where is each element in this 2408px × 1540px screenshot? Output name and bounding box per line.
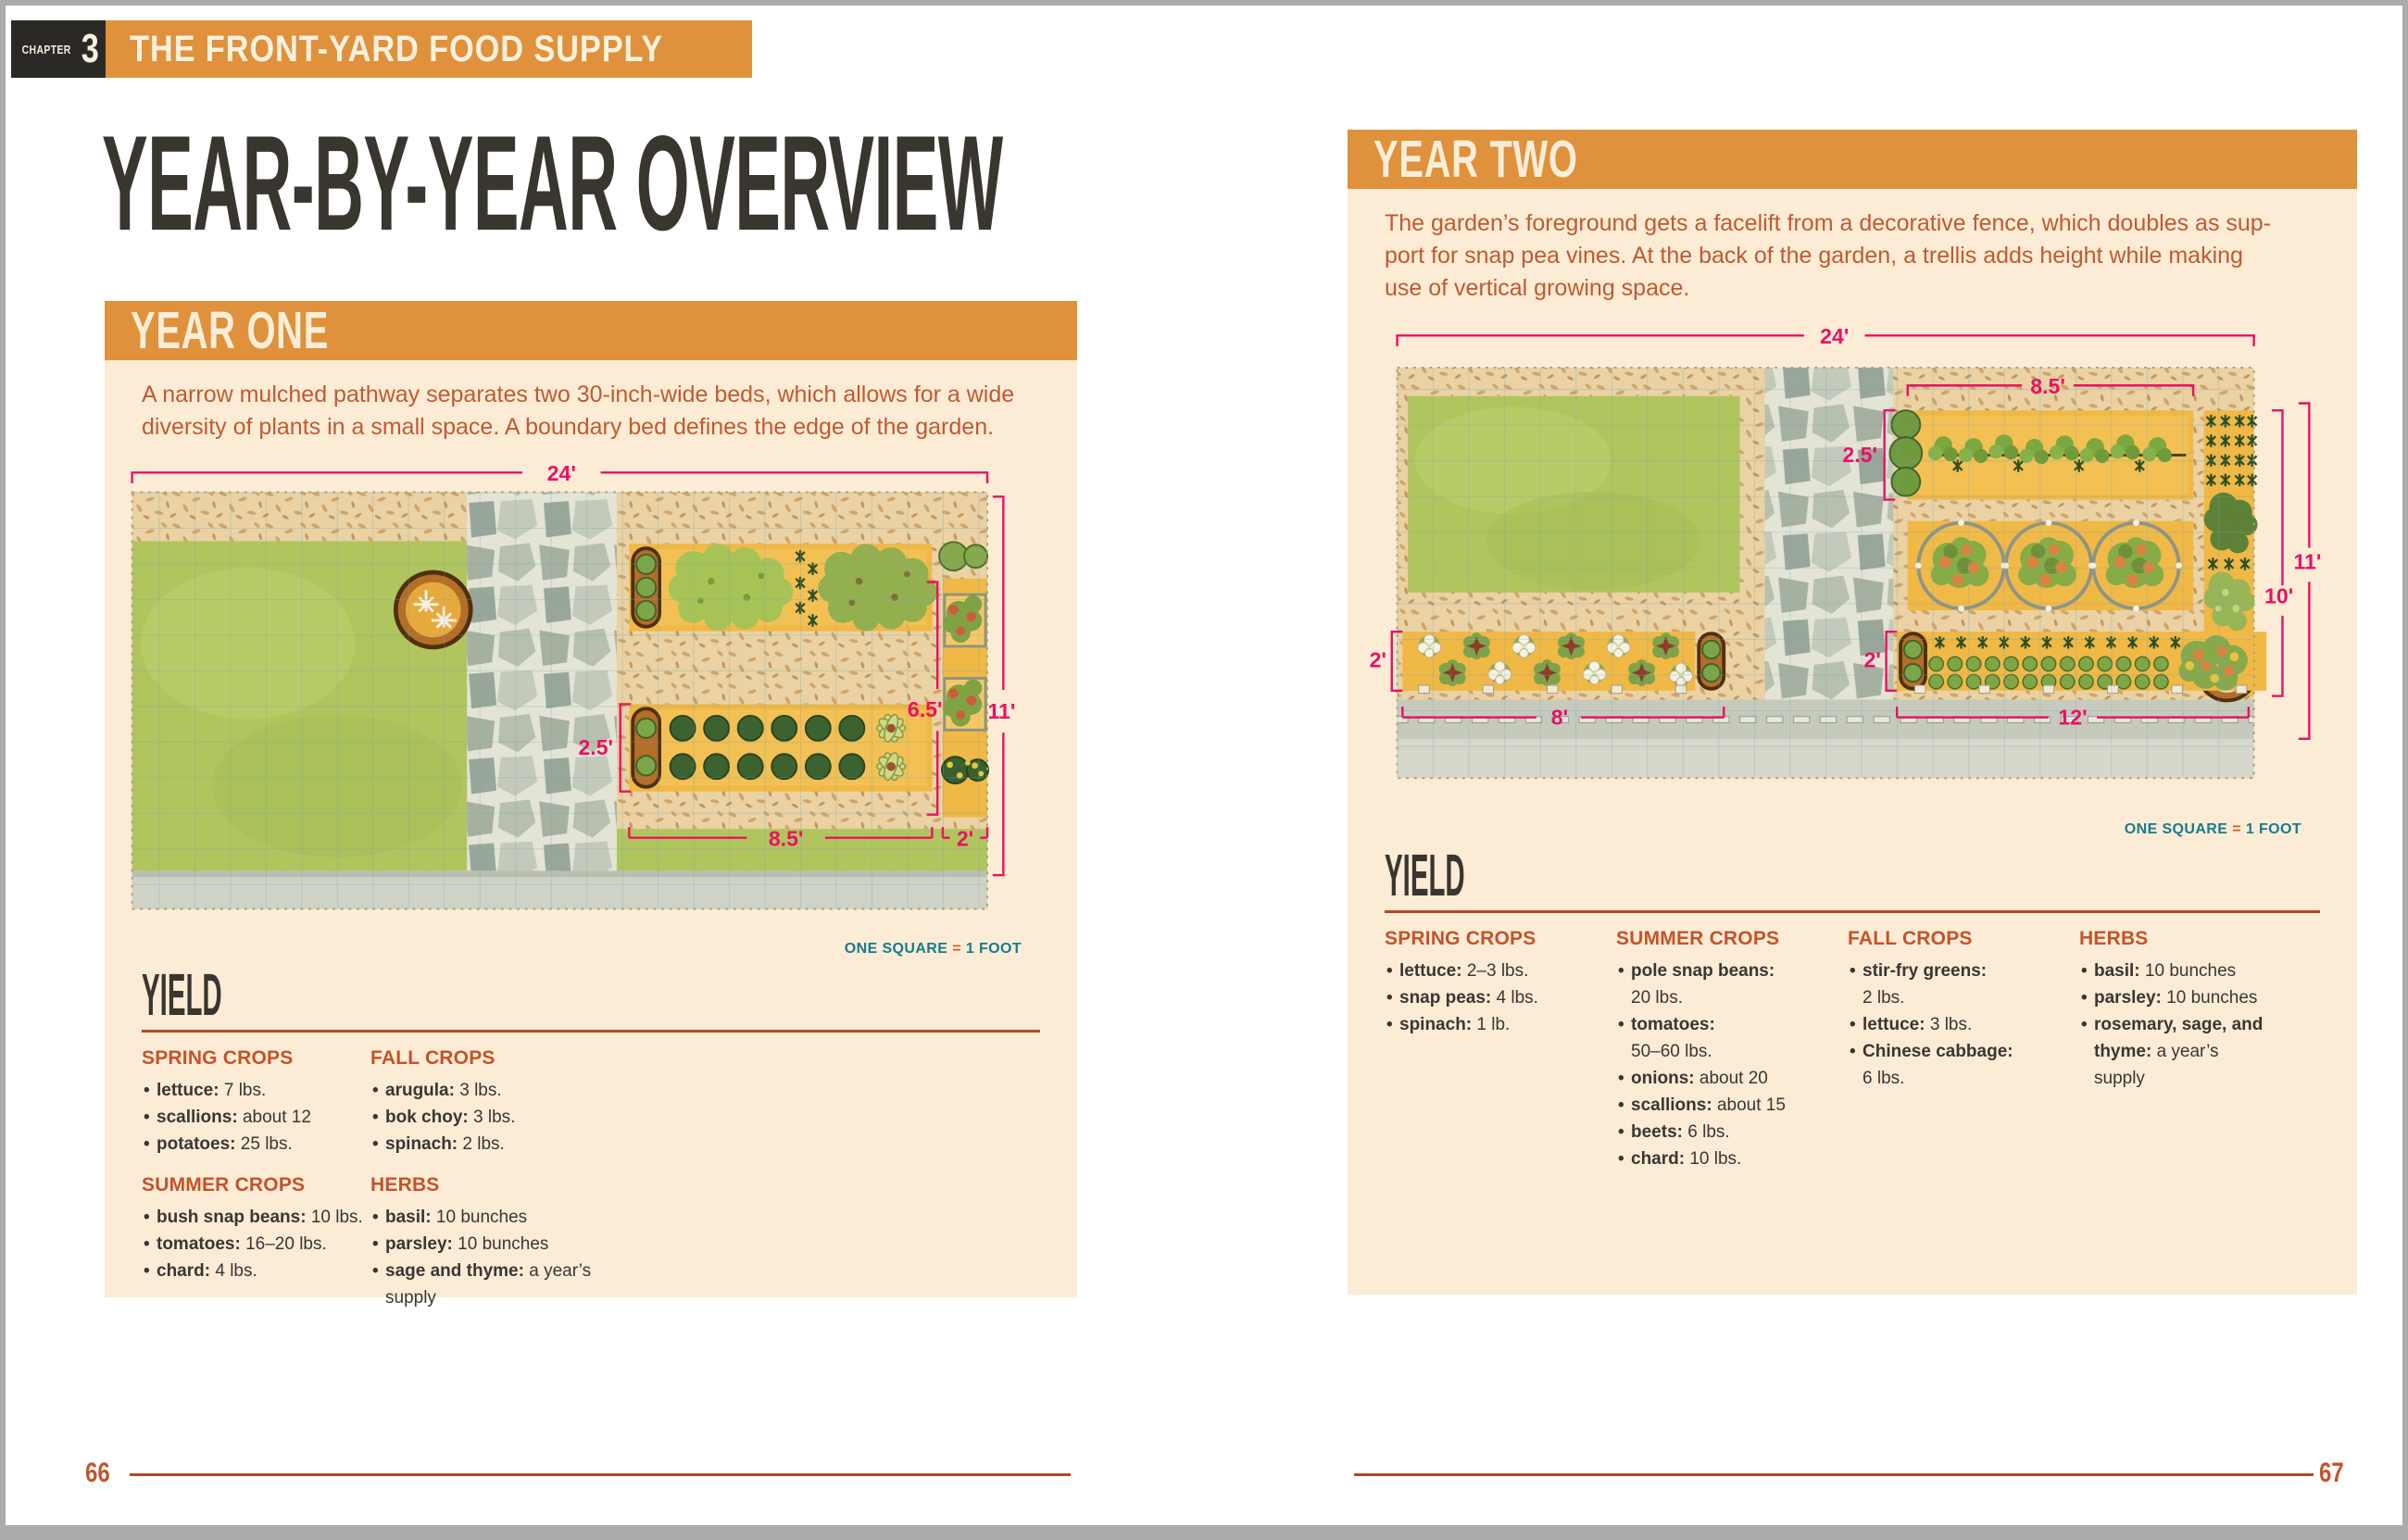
yield-column-summer: SUMMER CROPS pole snap beans: 20 lbs.tom… — [1616, 928, 1806, 1189]
year-two-header-bar: YEAR TWO — [1348, 130, 2357, 189]
chapter-title-bar: THE FRONT-YARD FOOD SUPPLY — [106, 20, 752, 78]
dimension-label-bed-depth: 2.5' — [578, 735, 613, 759]
dimension-label-trellis-bed-length: 8.5' — [2030, 374, 2065, 398]
dimension-label-border-bed-width: 2' — [957, 826, 973, 850]
crop-list: lettuce:2–3 lbs.snap peas:4 lbs.spinach:… — [1385, 958, 1574, 1038]
dimension-label-front-bed-depth-right: 2' — [1863, 648, 1880, 672]
crop-section-herbs: HERBS basil:10 bunchesparsley:10 bunches… — [370, 1174, 599, 1311]
year-one-diagram-wrap: 24' 2.5' 6.5' 11' 8.5' 2' — [123, 457, 1059, 937]
yield-item: lettuce:2–3 lbs. — [1385, 958, 1574, 984]
year-one-intro: A narrow mulched pathway separates two 3… — [142, 379, 1040, 444]
crop-section-title: SPRING CROPS — [142, 1047, 370, 1070]
dimension-label-trellis-bed-depth: 2.5' — [1842, 443, 1877, 467]
year-two-intro: The garden’s foreground gets a facelift … — [1385, 207, 2320, 305]
year-two-panel: YEAR TWO The garden’s foreground gets a … — [1348, 130, 2357, 1295]
crop-list: bush snap beans:10 lbs.tomatoes:16–20 lb… — [142, 1204, 370, 1284]
crop-section-title: FALL CROPS — [1848, 928, 2038, 950]
chapter-number-box: CHAPTER 3 — [11, 20, 106, 78]
dimension-label-front-bed-depth-left: 2' — [1370, 648, 1386, 672]
year-one-heading: YEAR ONE — [131, 300, 329, 361]
yield-item: rosemary, sage, and thyme:a year’s suppl… — [2079, 1011, 2269, 1092]
yield-item: potatoes:25 lbs. — [142, 1131, 370, 1158]
crop-section-fall: FALL CROPS stir-fry greens: 2 lbs.lettuc… — [1848, 928, 2038, 1092]
dimension-label-total-depth: 11' — [2293, 550, 2321, 574]
yield-item: snap peas:4 lbs. — [1385, 984, 1574, 1011]
yield-item: basil:10 bunches — [2079, 958, 2269, 984]
yield-column-2: FALL CROPS arugula:3 lbs.bok choy:3 lbs.… — [370, 1047, 599, 1328]
crop-section-title: SPRING CROPS — [1385, 928, 1574, 950]
crop-list: lettuce:7 lbs.scallions:about 12potatoes… — [142, 1077, 370, 1158]
crop-section-summer: SUMMER CROPS pole snap beans: 20 lbs.tom… — [1616, 928, 1806, 1172]
book-spread: CHAPTER 3 THE FRONT-YARD FOOD SUPPLY YEA… — [6, 6, 2402, 1525]
crop-list: stir-fry greens: 2 lbs.lettuce:3 lbs.Chi… — [1848, 958, 2038, 1092]
dimension-label-right-span: 10' — [2264, 583, 2293, 607]
crop-section-title: SUMMER CROPS — [142, 1174, 370, 1196]
scale-note: ONE SQUARE = 1 FOOT — [1348, 821, 2301, 838]
yield-item: stir-fry greens: 2 lbs. — [1848, 958, 2038, 1011]
dimension-label-beds-span: 6.5' — [908, 697, 943, 721]
footer-rule-right — [1354, 1473, 2314, 1476]
yield-column-herbs: HERBS basil:10 bunchesparsley:10 bunches… — [2079, 928, 2269, 1189]
dimension-label-front-bed-length-right: 12' — [2058, 705, 2087, 729]
year-one-panel: YEAR ONE A narrow mulched pathway separa… — [105, 301, 1077, 1297]
year-one-header-bar: YEAR ONE — [105, 301, 1077, 360]
year-one-yield: YIELD SPRING CROPS lettuce:7 lbs.scallio… — [142, 965, 1040, 1328]
yield-item: basil:10 bunches — [370, 1204, 599, 1231]
yield-item: bok choy:3 lbs. — [370, 1104, 599, 1131]
dimension-label-front-bed-length-left: 8' — [1551, 705, 1568, 729]
yield-item: tomatoes: 50–60 lbs. — [1616, 1011, 1806, 1065]
yield-columns: SPRING CROPS lettuce:2–3 lbs.snap peas:4… — [1385, 928, 2320, 1189]
year-two-garden-plan: 24' 8.5' 2.5' 11' 10' 2' 2' 8' 12' — [1361, 318, 2343, 818]
crop-list: basil:10 bunchesparsley:10 bunchessage a… — [370, 1204, 599, 1311]
footer-rule-left — [130, 1473, 1071, 1476]
crop-list: arugula:3 lbs.bok choy:3 lbs.spinach:2 l… — [370, 1077, 599, 1158]
yield-column-fall: FALL CROPS stir-fry greens: 2 lbs.lettuc… — [1848, 928, 2038, 1189]
chapter-number: 3 — [82, 26, 99, 72]
dimension-label-total-width: 24' — [547, 461, 576, 485]
crop-section-title: HERBS — [2079, 928, 2269, 950]
chapter-banner: CHAPTER 3 THE FRONT-YARD FOOD SUPPLY — [11, 20, 752, 78]
dimension-label-total-width: 24' — [1820, 324, 1849, 348]
yield-item: chard:10 lbs. — [1616, 1146, 1806, 1172]
crop-list: pole snap beans: 20 lbs.tomatoes: 50–60 … — [1616, 958, 1806, 1172]
dimension-label-total-depth: 11' — [987, 699, 1015, 723]
yield-column-spring: SPRING CROPS lettuce:2–3 lbs.snap peas:4… — [1385, 928, 1574, 1189]
yield-item: Chinese cabbage: 6 lbs. — [1848, 1038, 2038, 1092]
yield-item: pole snap beans: 20 lbs. — [1616, 958, 1806, 1011]
yield-heading: YIELD — [142, 965, 1040, 1024]
crop-section-title: FALL CROPS — [370, 1047, 599, 1070]
year-one-garden-plan: 24' 2.5' 6.5' 11' 8.5' 2' — [123, 457, 1059, 937]
crop-section-fall: FALL CROPS arugula:3 lbs.bok choy:3 lbs.… — [370, 1047, 599, 1158]
yield-rule — [142, 1030, 1040, 1033]
crop-section-spring: SPRING CROPS lettuce:2–3 lbs.snap peas:4… — [1385, 928, 1574, 1038]
yield-columns: SPRING CROPS lettuce:7 lbs.scallions:abo… — [142, 1047, 1040, 1328]
crop-section-herbs: HERBS basil:10 bunchesparsley:10 bunches… — [2079, 928, 2269, 1092]
crop-section-spring: SPRING CROPS lettuce:7 lbs.scallions:abo… — [142, 1047, 370, 1158]
yield-item: onions:about 20 — [1616, 1065, 1806, 1092]
yield-item: lettuce:3 lbs. — [1848, 1011, 2038, 1038]
year-two-yield: YIELD SPRING CROPS lettuce:2–3 lbs.snap … — [1385, 845, 2320, 1189]
grid-overlay — [132, 492, 987, 908]
page-number-left: 66 — [85, 1458, 116, 1489]
yield-item: beets:6 lbs. — [1616, 1119, 1806, 1146]
yield-item: bush snap beans:10 lbs. — [142, 1204, 370, 1231]
page-number-right: 67 — [2319, 1458, 2350, 1489]
yield-item: lettuce:7 lbs. — [142, 1077, 370, 1104]
year-two-heading: YEAR TWO — [1373, 129, 1578, 190]
yield-item: spinach:1 lb. — [1385, 1011, 1574, 1038]
yield-item: tomatoes:16–20 lbs. — [142, 1231, 370, 1258]
yield-item: chard:4 lbs. — [142, 1258, 370, 1284]
yield-item: scallions:about 12 — [142, 1104, 370, 1131]
yield-item: scallions:about 15 — [1616, 1092, 1806, 1119]
year-two-diagram-wrap: 24' 8.5' 2.5' 11' 10' 2' 2' 8' 12' — [1361, 318, 2339, 818]
chapter-label: CHAPTER — [21, 43, 70, 56]
yield-item: sage and thyme:a year’s supply — [370, 1258, 599, 1311]
yield-item: parsley:10 bunches — [2079, 984, 2269, 1011]
dimension-label-main-bed-length: 8.5' — [769, 826, 804, 850]
yield-rule — [1385, 910, 2320, 913]
yield-item: arugula:3 lbs. — [370, 1077, 599, 1104]
yield-heading: YIELD — [1385, 845, 2320, 905]
crop-list: basil:10 bunchesparsley:10 bunchesrosema… — [2079, 958, 2269, 1092]
scale-note: ONE SQUARE = 1 FOOT — [105, 941, 1022, 958]
chapter-title: THE FRONT-YARD FOOD SUPPLY — [130, 29, 663, 70]
crop-section-title: HERBS — [370, 1174, 599, 1196]
yield-item: spinach:2 lbs. — [370, 1131, 599, 1158]
yield-item: parsley:10 bunches — [370, 1231, 599, 1258]
yield-column-1: SPRING CROPS lettuce:7 lbs.scallions:abo… — [142, 1047, 370, 1328]
crop-section-summer: SUMMER CROPS bush snap beans:10 lbs.toma… — [142, 1174, 370, 1284]
crop-section-title: SUMMER CROPS — [1616, 928, 1806, 950]
